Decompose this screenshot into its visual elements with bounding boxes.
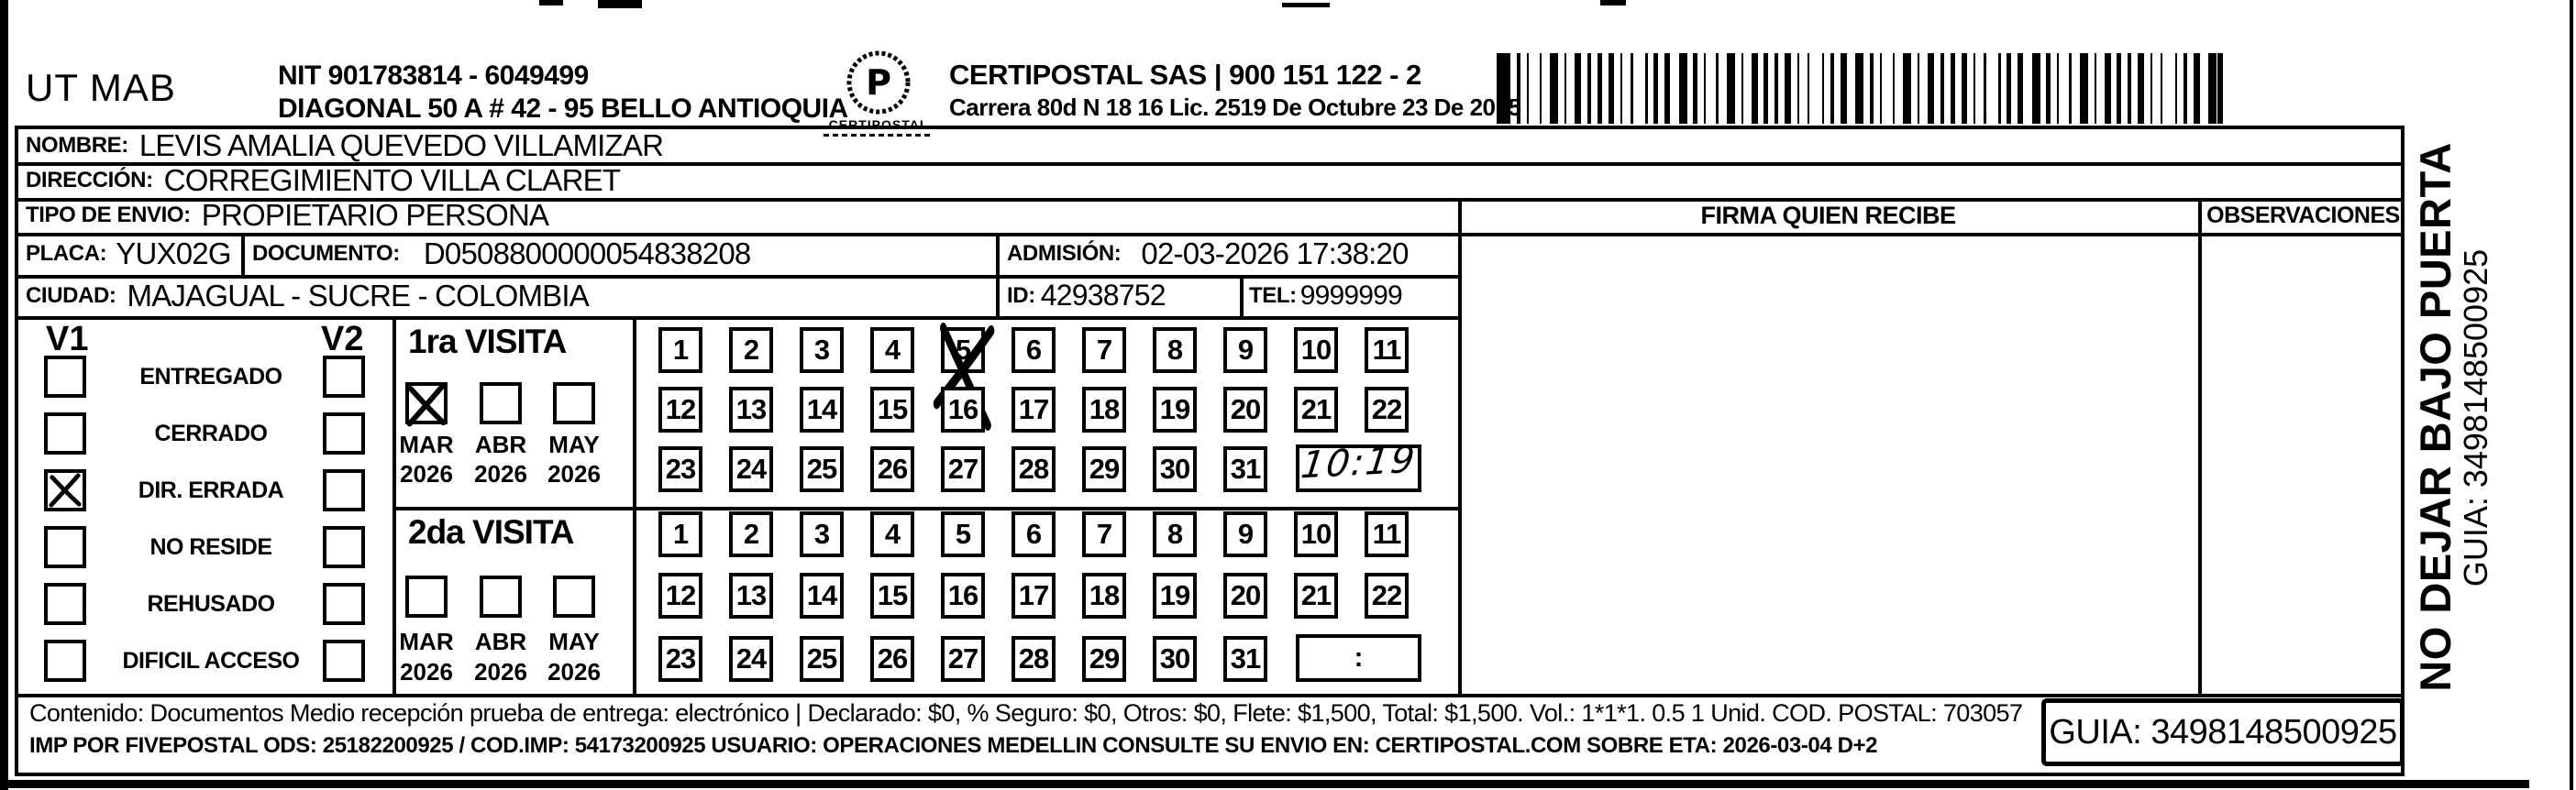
tipo-envio-value: PROPIETARIO PERSONA <box>202 198 548 233</box>
month-year: 2026 <box>463 460 538 488</box>
day-cell-3: 3 <box>800 327 844 373</box>
direccion-value: CORREGIMIENTO VILLA CLARET <box>164 163 621 198</box>
barcode-bar <box>2175 53 2177 124</box>
sender-nit: NIT 901783814 - 6049499 <box>278 60 589 92</box>
day-cell-31: 31 <box>1223 446 1267 492</box>
observaciones-area <box>2202 236 2401 690</box>
scan-artifact <box>1600 0 1626 5</box>
bottom-page-edge <box>0 780 2529 788</box>
barcode-bar <box>1502 53 1510 124</box>
direccion-row: DIRECCIÓN: CORREGIMIENTO VILLA CLARET <box>26 162 620 198</box>
documento-value: D0508800000054838208 <box>424 236 751 271</box>
day-cell-25: 25 <box>800 446 844 492</box>
barcode-bar <box>1653 53 1658 124</box>
barcode-bar <box>1609 53 1615 124</box>
barcode-bar <box>1841 53 1847 124</box>
status-label-rehusado: REHUSADO <box>95 583 326 625</box>
barcode-bar <box>1575 53 1581 124</box>
barcode-bar <box>2117 53 2121 124</box>
barcode-bar <box>1564 53 1566 124</box>
status-label-no-reside: NO RESIDE <box>95 526 326 568</box>
month-checkbox-may <box>553 382 595 424</box>
month-year: 2026 <box>536 658 612 686</box>
scanned-shipping-label: UT MAB NIT 901783814 - 6049499 DIAGONAL … <box>0 0 2576 790</box>
barcode-bar <box>1497 53 1502 124</box>
day-cell-27: 27 <box>941 446 985 492</box>
barcode-bar <box>1716 53 1718 124</box>
day-cell-17: 17 <box>1012 387 1056 433</box>
documento-cell: DOCUMENTO: D0508800000054838208 <box>252 233 750 275</box>
barcode-bar <box>2032 53 2040 124</box>
month-year: 2026 <box>536 460 612 488</box>
scan-artifact <box>598 0 642 8</box>
day-cell-12: 12 <box>658 573 702 619</box>
visit2-column-header: V2 <box>321 320 363 359</box>
observaciones-header: OBSERVACIONES <box>2198 198 2408 233</box>
day-cell-14: 14 <box>800 573 844 619</box>
day-cell-19: 19 <box>1153 387 1197 433</box>
guia-number: GUIA: 3498148500925 <box>2049 713 2396 752</box>
day-cell-1: 1 <box>658 511 702 557</box>
divider <box>392 507 1462 510</box>
day-cell-1: 1 <box>658 327 702 373</box>
day-cell-25: 25 <box>800 636 844 682</box>
day-cell-8: 8 <box>1153 327 1197 373</box>
tel-value: 9999999 <box>1300 280 1402 312</box>
certipostal-logo-icon: P <box>835 48 923 117</box>
barcode-bar <box>1693 53 1697 124</box>
day-cell-22: 22 <box>1365 387 1409 433</box>
barcode-bar <box>1808 53 1809 124</box>
barcode-bar <box>1984 53 1985 124</box>
barcode-bar <box>2069 53 2071 124</box>
day-cell-7: 7 <box>1082 327 1126 373</box>
visita1-time-box: 10:19 <box>1296 444 1421 492</box>
day-cell-5: 5 <box>941 511 985 557</box>
divider <box>241 233 245 279</box>
status-label-cerrado: CERRADO <box>95 412 326 455</box>
company-name: CERTIPOSTAL SAS | 900 151 122 - 2 <box>949 59 1421 92</box>
documento-label: DOCUMENTO: <box>252 241 400 267</box>
barcode-bar <box>1645 53 1647 124</box>
barcode-bar <box>1928 53 1934 124</box>
day-cell-30: 30 <box>1153 636 1197 682</box>
day-cell-10: 10 <box>1294 511 1338 557</box>
status-label-dificil-acceso: DIFICIL ACCESO <box>95 640 326 682</box>
month-label: MAY <box>536 431 612 459</box>
status-checkbox-v2-cerrado <box>323 412 365 455</box>
day-cell-21: 21 <box>1294 573 1338 619</box>
day-cell-20: 20 <box>1223 573 1267 619</box>
status-checkbox-v1-no-reside <box>44 526 86 568</box>
barcode-bar <box>1741 53 1743 124</box>
ciudad-cell: CIUDAD: MAJAGUAL - SUCRE - COLOMBIA <box>26 275 589 316</box>
day-cell-16: 16 <box>941 387 985 433</box>
nombre-value: LEVIS AMALIA QUEVEDO VILLAMIZAR <box>139 128 663 163</box>
barcode-bar <box>1704 53 1706 124</box>
barcode-bar <box>1893 53 1895 124</box>
month-label: ABR <box>463 431 538 459</box>
day-cell-12: 12 <box>658 387 702 433</box>
day-cell-6: 6 <box>1012 511 1056 557</box>
divider <box>18 694 2401 697</box>
tel-label: TEL: <box>1249 283 1297 309</box>
scan-artifact <box>1282 3 1330 7</box>
day-cell-28: 28 <box>1012 636 1056 682</box>
placa-label: PLACA: <box>26 241 106 267</box>
day-cell-30: 30 <box>1153 446 1197 492</box>
barcode-bar <box>1587 53 1592 124</box>
footer-line2: IMP POR FIVEPOSTAL ODS: 25182200925 / CO… <box>29 733 1877 759</box>
barcode-bar <box>2095 53 2096 124</box>
day-cell-26: 26 <box>870 636 914 682</box>
day-cell-3: 3 <box>800 511 844 557</box>
status-checkbox-v1-rehusado <box>44 583 86 625</box>
footer-line1: Contenido: Documentos Medio recepción pr… <box>29 699 2022 728</box>
barcode-bar <box>2150 53 2152 124</box>
admision-value: 02-03-2026 17:38:20 <box>1141 236 1408 271</box>
id-value: 42938752 <box>1041 279 1166 313</box>
day-cell-7: 7 <box>1082 511 1126 557</box>
form-table: NOMBRE: LEVIS AMALIA QUEVEDO VILLAMIZAR … <box>15 126 2405 776</box>
barcode-bar <box>1918 53 1919 124</box>
barcode-bar <box>1620 53 1622 124</box>
barcode-bar <box>1830 53 1835 124</box>
barcode-bar <box>1822 53 1824 124</box>
svg-text:P: P <box>866 62 891 103</box>
barcode-bar <box>2184 53 2188 124</box>
barcode-bar <box>1998 53 2000 124</box>
barcode-bar <box>2161 53 2162 124</box>
month-checkbox-abr <box>480 382 522 424</box>
month-year: 2026 <box>389 460 464 488</box>
visit1-column-header: V1 <box>46 320 88 359</box>
day-cell-14: 14 <box>800 387 844 433</box>
day-cell-29: 29 <box>1082 636 1126 682</box>
nombre-row: NOMBRE: LEVIS AMALIA QUEVEDO VILLAMIZAR <box>26 129 663 162</box>
day-cell-19: 19 <box>1153 573 1197 619</box>
month-checkbox-may <box>553 576 595 618</box>
barcode-bar <box>1973 53 1975 124</box>
day-cell-13: 13 <box>729 387 773 433</box>
sender-code: UT MAB <box>26 66 176 110</box>
placa-value: YUX02G <box>116 236 230 271</box>
status-checkbox-v1-dir-errada <box>44 469 86 511</box>
barcode-bar <box>2128 53 2132 124</box>
status-checkbox-v2-entregado <box>323 356 365 398</box>
id-label: ID: <box>1007 283 1035 309</box>
day-cell-15: 15 <box>870 573 914 619</box>
side-guia: GUIA: 3498148500925 <box>2457 125 2493 711</box>
barcode-bar <box>1785 53 1791 124</box>
day-cell-31: 31 <box>1223 636 1267 682</box>
barcode-bar <box>2057 53 2059 124</box>
firma-header: FIRMA QUIEN RECIBE <box>1458 198 2198 233</box>
admision-label: ADMISIÓN: <box>1007 241 1121 267</box>
day-cell-11: 11 <box>1365 327 1409 373</box>
status-checkbox-v2-dir-errada <box>323 469 365 511</box>
day-cell-18: 18 <box>1082 387 1126 433</box>
left-page-edge <box>0 0 8 790</box>
day-cell-15: 15 <box>870 387 914 433</box>
barcode-bar <box>1550 53 1558 124</box>
day-cell-4: 4 <box>870 511 914 557</box>
barcode-bar <box>1752 53 1758 124</box>
day-cell-18: 18 <box>1082 573 1126 619</box>
status-checkbox-v1-dificil-acceso <box>44 640 86 682</box>
barcode-bar <box>1598 53 1602 124</box>
barcode-bar <box>1940 53 1945 124</box>
id-cell: ID: 42938752 <box>1007 275 1166 316</box>
month-label: MAR <box>389 628 464 656</box>
barcode-bar <box>2138 53 2144 124</box>
side-warning: NO DEJAR BAJO PUERTA <box>2410 124 2454 710</box>
company-address: Carrera 80d N 18 16 Lic. 2519 De Octubre… <box>949 93 1520 122</box>
barcode-bar <box>2194 53 2200 124</box>
barcode-bar <box>1527 53 1529 124</box>
status-checkbox-v1-entregado <box>44 356 86 398</box>
divider <box>996 233 1000 320</box>
barcode-bar <box>1774 53 1779 124</box>
placa-cell: PLACA: YUX02G <box>26 233 231 275</box>
day-cell-6: 6 <box>1012 327 1056 373</box>
barcode-bar <box>1797 53 1799 124</box>
day-cell-9: 9 <box>1223 511 1267 557</box>
day-cell-16: 16 <box>941 573 985 619</box>
barcode-bar <box>2007 53 2011 124</box>
month-year: 2026 <box>389 658 464 686</box>
day-cell-27: 27 <box>941 636 985 682</box>
day-cell-10: 10 <box>1294 327 1338 373</box>
status-label-dir-errada: DIR. ERRADA <box>95 469 326 511</box>
visita2-time-box: : <box>1296 634 1421 682</box>
barcode-bar <box>2105 53 2111 124</box>
nombre-label: NOMBRE: <box>26 133 128 159</box>
day-cell-8: 8 <box>1153 511 1197 557</box>
month-label: ABR <box>463 628 538 656</box>
barcode-bar <box>1631 53 1632 124</box>
barcode-bar <box>1855 53 1863 124</box>
month-label: MAR <box>389 431 464 459</box>
scan-artifact <box>539 0 563 5</box>
barcode-bar <box>2046 53 2051 124</box>
day-cell-29: 29 <box>1082 446 1126 492</box>
barcode-bar <box>1540 53 1542 124</box>
right-page-edge <box>2570 0 2573 790</box>
day-cell-13: 13 <box>729 573 773 619</box>
day-cell-22: 22 <box>1365 573 1409 619</box>
visita2-time-placeholder: : <box>1299 638 1418 678</box>
status-checkbox-v1-cerrado <box>44 412 86 455</box>
barcode-bar <box>1727 53 1735 124</box>
barcode-bar <box>1517 53 1521 124</box>
status-checkbox-v2-rehusado <box>323 583 365 625</box>
day-cell-4: 4 <box>870 327 914 373</box>
barcode-bar <box>1903 53 1911 124</box>
tipo-envio-row: TIPO DE ENVIO: PROPIETARIO PERSONA <box>26 198 548 233</box>
divider <box>633 316 636 697</box>
barcode-bar <box>1962 53 1968 124</box>
tel-cell: TEL: 9999999 <box>1249 275 1402 316</box>
divider <box>18 316 1462 320</box>
month-label: MAY <box>536 628 612 656</box>
day-cell-24: 24 <box>729 446 773 492</box>
firma-area <box>1462 236 2195 690</box>
day-cell-2: 2 <box>729 327 773 373</box>
ciudad-value: MAJAGUAL - SUCRE - COLOMBIA <box>127 279 589 313</box>
month-checkbox-abr <box>480 576 522 618</box>
barcode-bar <box>2217 53 2223 124</box>
day-cell-20: 20 <box>1223 387 1267 433</box>
tipo-envio-label: TIPO DE ENVIO: <box>26 203 191 228</box>
day-cell-21: 21 <box>1294 387 1338 433</box>
day-cell-26: 26 <box>870 446 914 492</box>
barcode-bar <box>1880 53 1882 124</box>
barcode-bar <box>1763 53 1768 124</box>
guia-box: GUIA: 3498148500925 <box>2041 698 2405 766</box>
status-label-entregado: ENTREGADO <box>95 356 326 398</box>
day-cell-2: 2 <box>729 511 773 557</box>
ciudad-label: CIUDAD: <box>26 283 116 309</box>
month-checkbox-mar <box>405 576 448 618</box>
handwritten-x-mark <box>48 473 83 508</box>
day-cell-23: 23 <box>658 636 702 682</box>
divider <box>1240 275 1244 320</box>
direccion-label: DIRECCIÓN: <box>26 168 153 193</box>
month-year: 2026 <box>463 658 538 686</box>
sender-address: DIAGONAL 50 A # 42 - 95 BELLO ANTIOQUIA <box>278 93 848 125</box>
visita2-title: 2da VISITA <box>408 513 574 552</box>
barcode-bar <box>1679 53 1687 124</box>
day-cell-24: 24 <box>729 636 773 682</box>
day-cell-9: 9 <box>1223 327 1267 373</box>
barcode-bar <box>2018 53 2024 124</box>
day-cell-11: 11 <box>1365 511 1409 557</box>
barcode-bar <box>1664 53 1671 124</box>
status-checkbox-v2-no-reside <box>323 526 365 568</box>
admision-cell: ADMISIÓN: 02-03-2026 17:38:20 <box>1007 233 1409 275</box>
day-cell-28: 28 <box>1012 446 1056 492</box>
barcode-bar <box>1870 53 1874 124</box>
visita1-handwritten-time: 10:19 <box>1297 438 1421 487</box>
day-cell-17: 17 <box>1012 573 1056 619</box>
barcode-bar <box>2208 53 2217 124</box>
visita1-title: 1ra VISITA <box>408 323 566 361</box>
barcode-bar <box>1951 53 1955 124</box>
status-checkbox-v2-dificil-acceso <box>323 640 365 682</box>
day-cell-23: 23 <box>658 446 702 492</box>
handwritten-x-mark <box>405 383 448 427</box>
barcode <box>1497 53 2228 124</box>
month-checkbox-mar <box>405 382 448 424</box>
barcode-bar <box>2080 53 2088 124</box>
